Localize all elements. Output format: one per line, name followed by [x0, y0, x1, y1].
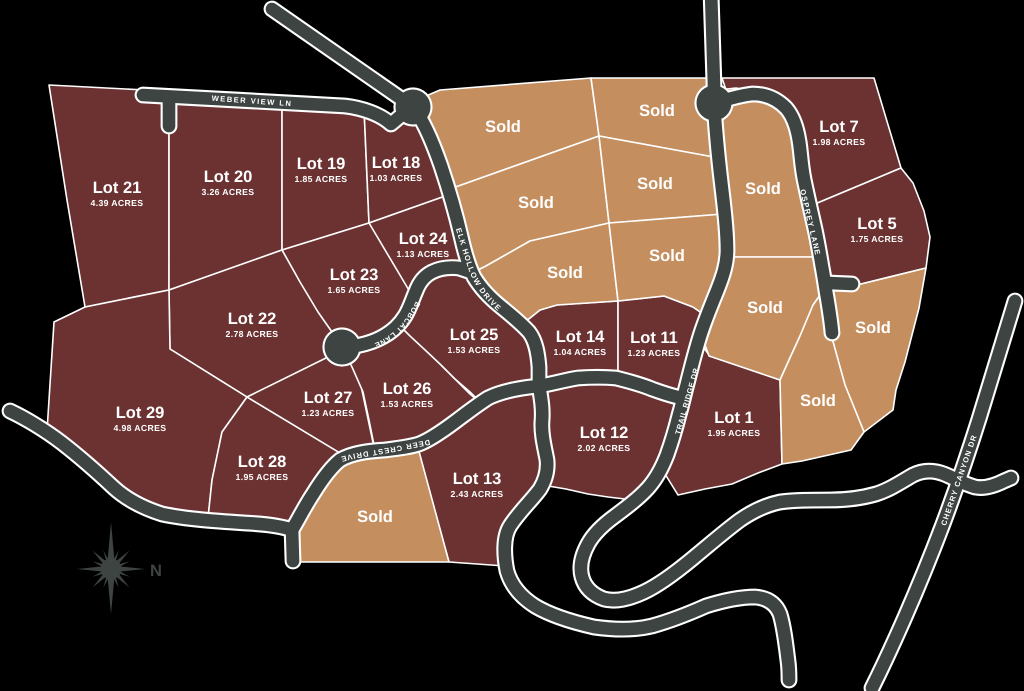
svg-text:1.98 ACRES: 1.98 ACRES: [813, 137, 866, 147]
svg-text:1.75 ACRES: 1.75 ACRES: [851, 234, 904, 244]
svg-text:Lot 14: Lot 14: [556, 328, 605, 346]
svg-text:Sold: Sold: [485, 118, 521, 136]
svg-text:3.26 ACRES: 3.26 ACRES: [202, 187, 255, 197]
svg-text:Sold: Sold: [518, 194, 554, 212]
svg-text:Sold: Sold: [745, 180, 781, 198]
svg-text:1.95 ACRES: 1.95 ACRES: [708, 428, 761, 438]
svg-text:Lot 26: Lot 26: [383, 380, 432, 398]
svg-text:1.23 ACRES: 1.23 ACRES: [302, 408, 355, 418]
svg-text:1.95 ACRES: 1.95 ACRES: [236, 472, 289, 482]
svg-text:1.13 ACRES: 1.13 ACRES: [397, 249, 450, 259]
svg-text:1.23 ACRES: 1.23 ACRES: [628, 348, 681, 358]
svg-text:Sold: Sold: [747, 299, 783, 317]
svg-text:Sold: Sold: [637, 175, 673, 193]
svg-text:Lot 29: Lot 29: [116, 404, 165, 422]
svg-text:Sold: Sold: [357, 508, 393, 526]
svg-text:Lot 19: Lot 19: [297, 155, 346, 173]
svg-text:1.03 ACRES: 1.03 ACRES: [370, 173, 423, 183]
svg-text:N: N: [150, 562, 162, 580]
svg-text:Lot 24: Lot 24: [399, 230, 448, 248]
svg-text:Lot 1: Lot 1: [714, 409, 753, 427]
svg-text:Lot 20: Lot 20: [204, 168, 253, 186]
svg-text:Lot 5: Lot 5: [857, 215, 896, 233]
svg-text:Sold: Sold: [855, 319, 891, 337]
svg-text:Sold: Sold: [800, 392, 836, 410]
svg-text:1.53 ACRES: 1.53 ACRES: [448, 345, 501, 355]
svg-text:Lot 7: Lot 7: [819, 118, 858, 136]
svg-text:Lot 18: Lot 18: [372, 154, 421, 172]
svg-text:4.98 ACRES: 4.98 ACRES: [114, 423, 167, 433]
svg-text:Lot 21: Lot 21: [93, 179, 142, 197]
svg-text:Sold: Sold: [639, 102, 675, 120]
svg-text:1.04 ACRES: 1.04 ACRES: [554, 347, 607, 357]
svg-text:Lot 23: Lot 23: [330, 266, 379, 284]
svg-text:1.53 ACRES: 1.53 ACRES: [381, 399, 434, 409]
svg-text:Lot 25: Lot 25: [450, 326, 499, 344]
svg-text:Lot 28: Lot 28: [238, 453, 287, 471]
svg-text:4.39 ACRES: 4.39 ACRES: [91, 198, 144, 208]
svg-text:2.02 ACRES: 2.02 ACRES: [578, 443, 631, 453]
svg-text:2.78 ACRES: 2.78 ACRES: [226, 329, 279, 339]
svg-text:Lot 27: Lot 27: [304, 389, 353, 407]
svg-text:2.43 ACRES: 2.43 ACRES: [451, 489, 504, 499]
svg-text:Sold: Sold: [649, 247, 685, 265]
svg-text:Sold: Sold: [547, 264, 583, 282]
svg-text:1.85 ACRES: 1.85 ACRES: [295, 174, 348, 184]
svg-text:Lot 13: Lot 13: [453, 470, 502, 488]
svg-text:Lot 11: Lot 11: [630, 329, 678, 347]
svg-text:1.65 ACRES: 1.65 ACRES: [328, 285, 381, 295]
svg-text:Lot 12: Lot 12: [580, 424, 629, 442]
svg-text:Lot 22: Lot 22: [228, 310, 277, 328]
